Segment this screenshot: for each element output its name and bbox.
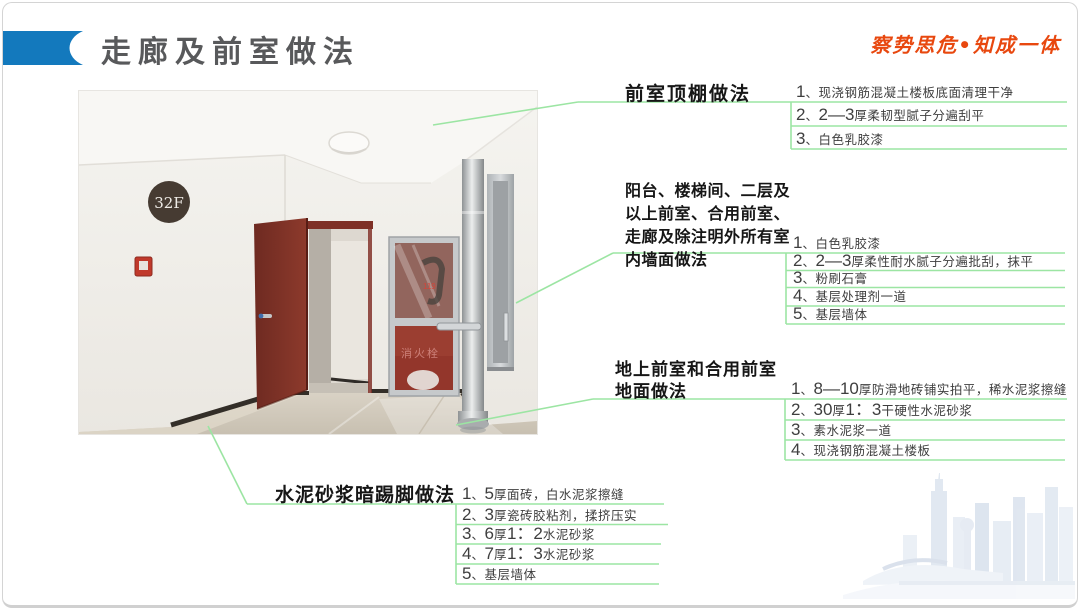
ceiling-step: 1、现浇钢筋混凝土楼板底面清理干净 bbox=[796, 83, 1013, 102]
slide: 走廊及前室做法 察势思危•知成一体 bbox=[2, 2, 1078, 608]
ceiling-step: 2、2—3厚柔韧型腻子分遍刮平 bbox=[796, 106, 984, 125]
elevator-frame bbox=[487, 174, 514, 371]
wall-step: 4、基层处理剂一道 bbox=[793, 287, 906, 306]
skirting-step: 5、基层墙体 bbox=[462, 565, 536, 584]
plastic-bag bbox=[407, 370, 439, 390]
floor-number-sign: 32F bbox=[148, 181, 190, 223]
cabinet-label: 消火栓 bbox=[401, 346, 440, 360]
skirting-step: 4、7厚1：3水泥砂浆 bbox=[462, 545, 595, 564]
heading-ceiling-method: 前室顶棚做法 bbox=[625, 79, 751, 106]
floor-step: 2、30厚1：3干硬性水泥砂浆 bbox=[791, 401, 972, 420]
cabinet-number: 119 bbox=[423, 282, 436, 291]
page-title: 走廊及前室做法 bbox=[101, 27, 360, 71]
svg-text:32F: 32F bbox=[154, 194, 184, 212]
door-frame-top bbox=[305, 221, 373, 229]
room-photo: 119 消火栓 bbox=[78, 90, 538, 435]
skirting-step: 2、3厚瓷砖胶粘剂，揉挤压实 bbox=[462, 506, 637, 525]
floor-annotation-lines bbox=[456, 399, 1067, 460]
skirting-step: 3、6厚1：2水泥砂浆 bbox=[462, 525, 595, 544]
floor-step: 4、现浇钢筋混凝土楼板 bbox=[791, 441, 930, 460]
heading-wall-method: 阳台、楼梯间、二层及 以上前室、合用前室、 走廊及除注明外所有室 内墙面做法 bbox=[625, 180, 790, 272]
open-door bbox=[254, 218, 307, 409]
title-accent-shape bbox=[3, 31, 89, 65]
skirting-step: 1、5厚面砖，白水泥浆擦缝 bbox=[462, 485, 624, 504]
floor-step: 1、8—10厚防滑地砖铺实拍平，稀水泥浆擦缝 bbox=[791, 380, 1067, 399]
slide-canvas: 走廊及前室做法 察势思危•知成一体 bbox=[0, 0, 1080, 610]
floor-step: 3、素水泥浆一道 bbox=[791, 421, 891, 440]
company-motto: 察势思危•知成一体 bbox=[801, 29, 1061, 58]
cabinet-handle-bar bbox=[437, 323, 481, 330]
ceiling-step: 3、白色乳胶漆 bbox=[796, 130, 883, 149]
wall-step: 3、粉刷石膏 bbox=[793, 269, 867, 288]
wall-step: 5、基层墙体 bbox=[793, 305, 867, 324]
heading-floor-method: 地上前室和合用前室 地面做法 bbox=[615, 359, 777, 403]
heading-skirting-method: 水泥砂浆暗踢脚做法 bbox=[275, 480, 455, 507]
city-skyline-watermark bbox=[843, 473, 1075, 599]
fire-hydrant-cabinet: 119 消火栓 bbox=[389, 237, 459, 396]
fire-alarm-box bbox=[135, 257, 152, 276]
